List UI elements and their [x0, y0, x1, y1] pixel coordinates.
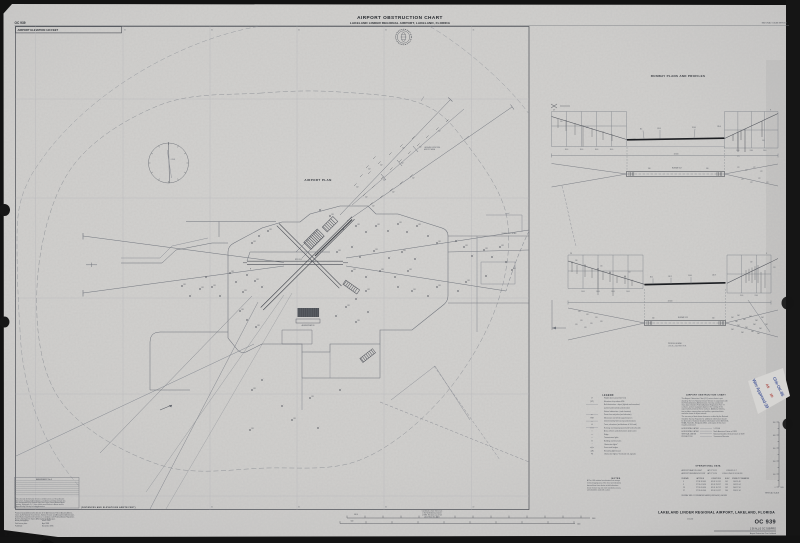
svg-text:240: 240 [575, 260, 578, 262]
svg-text:VERTICAL DATUM: VERTICAL DATUM [682, 432, 697, 435]
svg-text:00: 00 [298, 507, 300, 509]
svg-text:212: 212 [368, 169, 371, 171]
svg-text:PROFILE LEGEND: PROFILE LEGEND [668, 343, 683, 345]
svg-text:264: 264 [757, 333, 760, 335]
svg-text:172: 172 [753, 167, 756, 169]
svg-text:35: 35 [473, 30, 475, 32]
svg-text:181: 181 [311, 396, 314, 398]
svg-text:LAT 27 59 11: LAT 27 59 11 [707, 469, 717, 472]
svg-text:172: 172 [741, 179, 744, 181]
svg-text:27 59 06.946: 27 59 06.946 [696, 490, 706, 492]
svg-text:296 51 34: 296 51 34 [733, 490, 741, 492]
svg-text:3000: 3000 [592, 518, 596, 520]
svg-text:141: 141 [580, 320, 583, 322]
svg-text:VERTICAL SCALE: VERTICAL SCALE [765, 492, 780, 495]
svg-text:264: 264 [749, 316, 752, 318]
svg-text:1:12,000: 1:12,000 [687, 519, 693, 521]
svg-text:and other items of airport int: and other items of airport interest. [682, 412, 708, 415]
svg-text:142.2: 142.2 [668, 276, 672, 278]
svg-text:140 51 46: 140 51 46 [733, 481, 741, 483]
svg-text:Determined by field survey (an: Determined by field survey (and elevatio… [604, 420, 636, 423]
svg-text:AIRPORT OBSTRUCTION CHART: AIRPORT OBSTRUCTION CHART [357, 15, 443, 20]
svg-text:172: 172 [766, 182, 769, 184]
svg-text:23: 23 [683, 487, 685, 489]
svg-text:OC 939: OC 939 [755, 519, 776, 525]
svg-text:264: 264 [751, 331, 754, 333]
svg-text:9: 9 [770, 109, 771, 111]
svg-text:500: 500 [706, 168, 709, 170]
svg-text:FS: FS [591, 454, 593, 456]
svg-text:181: 181 [438, 241, 441, 243]
svg-text:5: 5 [766, 253, 767, 255]
svg-text:RUNWAY: RUNWAY [682, 477, 690, 480]
svg-text:8000: 8000 [595, 149, 599, 151]
svg-text:8000: 8000 [610, 149, 614, 151]
svg-text:+ +: + + [591, 434, 593, 436]
svg-text:181: 181 [251, 428, 254, 430]
svg-text:OPERATIONAL DATA: OPERATIONAL DATA [695, 464, 720, 467]
svg-text:1000: 1000 [577, 524, 581, 526]
svg-text:(171): (171) [590, 401, 594, 403]
svg-text:NOTES: NOTES [611, 478, 620, 480]
svg-text:HORIZONTAL DATUM: HORIZONTAL DATUM [682, 430, 700, 433]
svg-text:500 0: 500 0 [354, 514, 358, 516]
svg-text:5: 5 [683, 481, 684, 483]
svg-text:AMENDMENT No.9: AMENDMENT No.9 [36, 478, 52, 481]
svg-text:10 000: 10 000 [674, 154, 679, 156]
svg-text:Areas of trees and obstruction: Areas of trees and obstructions (and cov… [604, 430, 637, 433]
svg-text:8000: 8000 [580, 149, 584, 151]
svg-text:5 000: 5 000 [688, 275, 692, 277]
svg-text:9: 9 [683, 484, 684, 486]
svg-text:139.6: 139.6 [717, 126, 721, 128]
svg-text:141: 141 [575, 324, 578, 326]
svg-text:OC 939: OC 939 [15, 21, 26, 25]
svg-text:181: 181 [485, 248, 488, 250]
svg-text:400: 400 [773, 435, 776, 437]
svg-text:181: 181 [253, 388, 256, 390]
svg-text:B 41: B 41 [650, 277, 653, 279]
svg-text:141: 141 [600, 321, 603, 323]
svg-text:181: 181 [293, 418, 296, 420]
svg-text:AIRPORT OBSTRUCTION CHART: AIRPORT OBSTRUCTION CHART [686, 394, 726, 397]
svg-text:10 000: 10 000 [668, 301, 673, 303]
svg-text:212: 212 [419, 147, 422, 149]
svg-text:181: 181 [213, 285, 216, 287]
svg-text:264: 264 [741, 332, 744, 334]
svg-text:82 02 23.217: 82 02 23.217 [711, 484, 721, 486]
svg-text:181: 181 [253, 241, 256, 243]
svg-text:172: 172 [745, 170, 748, 172]
svg-text:292: 292 [750, 262, 753, 264]
svg-text:17: 17 [591, 398, 593, 400]
svg-text:23: 23 [570, 253, 572, 255]
svg-text:may be purchased.: may be purchased. [682, 424, 697, 427]
svg-text:181: 181 [257, 325, 260, 327]
svg-text:172: 172 [758, 178, 761, 180]
svg-text:241: 241 [773, 267, 776, 269]
svg-text:212: 212 [372, 206, 375, 208]
svg-text:LAKELAND LINDER REGIONAL AIRPO: LAKELAND LINDER REGIONAL AIRPORT, LAKELA… [658, 511, 775, 515]
svg-text:141: 141 [578, 311, 581, 313]
svg-text:82 01 16.712: 82 01 16.712 [711, 487, 721, 489]
svg-text:November 1985: November 1985 [42, 526, 53, 528]
svg-text:145 21 04: 145 21 04 [733, 484, 741, 486]
svg-text:264: 264 [759, 328, 762, 330]
svg-text:181: 181 [367, 289, 370, 291]
svg-text:172: 172 [750, 182, 753, 184]
svg-text:141: 141 [595, 317, 598, 319]
svg-text:Building and structures: Building and structures [604, 440, 621, 443]
svg-text:181: 181 [357, 320, 360, 322]
svg-text:181: 181 [375, 249, 378, 251]
svg-text:Ridge: Ridge [604, 434, 608, 436]
svg-text:00: 00 [211, 507, 213, 509]
svg-text:181: 181 [183, 284, 186, 286]
svg-text:212: 212 [380, 165, 383, 167]
svg-text:VISIBILITY REMARKS: VISIBILITY REMARKS [732, 477, 750, 480]
svg-text:27 59 07.426: 27 59 07.426 [696, 484, 706, 486]
svg-text:B: B [591, 441, 592, 443]
svg-text:172: 172 [760, 171, 763, 173]
svg-text:140.9: 140.9 [712, 275, 716, 277]
svg-text:27 58 32.049: 27 58 32.049 [696, 481, 706, 483]
svg-text:8 500: 8 500 [692, 127, 696, 129]
svg-text:March 1984: March 1984 [42, 520, 51, 522]
svg-text:181: 181 [331, 214, 334, 216]
svg-text:181: 181 [269, 229, 272, 231]
svg-text:212: 212 [383, 180, 386, 182]
svg-text:1 INCH = 2000 FEET HOR.: 1 INCH = 2000 FEET HOR. [668, 346, 687, 348]
svg-text:269: 269 [586, 127, 589, 129]
svg-text:27 59 09.456: 27 59 09.456 [696, 487, 706, 489]
svg-text:RWY 9-27: RWY 9-27 [295, 259, 302, 261]
svg-text:painted and marked) and elevat: painted and marked) and elevation [604, 407, 630, 410]
svg-text:LAKELAND LINDER REGIONAL AIRPO: LAKELAND LINDER REGIONAL AIRPORT, LAKELA… [350, 21, 451, 25]
svg-text:212: 212 [365, 197, 368, 199]
svg-text:(DISTANCES AND ELEVATIONS A: (DISTANCES AND ELEVATIONS ARE IN FEET) [81, 506, 136, 509]
svg-text:0°30'E: 0°30'E [171, 159, 175, 161]
svg-text:181: 181 [409, 269, 412, 271]
svg-text:B 4: B 4 [640, 129, 642, 131]
svg-text:141: 141 [590, 323, 593, 325]
svg-text:o(R): o(R) [590, 450, 594, 452]
svg-text:2000: 2000 [750, 150, 754, 152]
svg-text:264: 264 [735, 321, 738, 323]
svg-text:LAT 27 59 20: LAT 27 59 20 [707, 472, 717, 475]
svg-text:00: 00 [385, 507, 387, 509]
svg-text:271: 271 [737, 156, 740, 158]
svg-text:Obstruction lights*: Obstruction lights* [604, 443, 618, 446]
svg-text:264: 264 [755, 320, 758, 322]
svg-text:North American Datum of 19: North American Datum of 1983 [714, 430, 737, 433]
svg-text:181: 181 [465, 245, 468, 247]
svg-text:0: 0 [775, 487, 776, 489]
svg-text:Published:: Published: [15, 526, 23, 528]
svg-text:=(=)=: =(=)= [590, 447, 594, 449]
svg-text:264: 264 [731, 317, 734, 319]
svg-text:264: 264 [731, 329, 734, 331]
svg-text:NATIONAL OCEAN SERVICE: NATIONAL OCEAN SERVICE [762, 22, 788, 25]
svg-text:2000: 2000 [740, 295, 744, 297]
svg-text:AIRPORT BEACON LIGHT: AIRPORT BEACON LIGHT [682, 469, 702, 472]
svg-text:142: 142 [725, 487, 728, 489]
svg-text:181: 181 [418, 224, 421, 226]
svg-text:LATITUDE: LATITUDE [696, 477, 705, 480]
svg-text:Elevation of top above MSL: Elevation of top above MSL [604, 400, 625, 403]
svg-text:35: 35 [385, 30, 387, 32]
svg-text:181: 181 [501, 245, 504, 247]
svg-text:2000: 2000 [736, 150, 740, 152]
svg-text:82 00 51.127: 82 00 51.127 [711, 490, 721, 492]
svg-text:300: 300 [773, 448, 776, 450]
svg-text:AIRPORT PLAN: AIRPORT PLAN [304, 178, 331, 182]
svg-text:LONG LONG 82 01 04.263: LONG LONG 82 01 04.263 [722, 473, 742, 475]
svg-text:Height above ground (in feet): Height above ground (in feet) [604, 397, 626, 400]
svg-text:Transmission lights: Transmission lights [604, 436, 619, 439]
svg-text:Trees, elevations (and bottoms: Trees, elevations (and bottoms of 50 ft … [604, 423, 637, 426]
svg-text:339: 339 [560, 121, 563, 123]
svg-text:264: 264 [753, 324, 756, 326]
svg-text:181: 181 [353, 269, 356, 271]
svg-text:306: 306 [762, 140, 765, 142]
svg-text:204: 204 [628, 272, 631, 274]
svg-text:2000: 2000 [755, 295, 759, 297]
svg-text:264: 264 [745, 327, 748, 329]
svg-text:2000: 2000 [763, 150, 767, 152]
svg-text:8000: 8000 [596, 291, 600, 293]
svg-text:181: 181 [256, 279, 259, 281]
svg-text:Power line and poles (and elev: Power line and poles (and elevation) [604, 413, 632, 416]
svg-text:Obstruction lights (* fixed an: Obstruction lights (* fixed and red, sig… [604, 453, 636, 456]
svg-text:212: 212 [392, 192, 395, 194]
svg-text:139: 139 [725, 484, 728, 486]
svg-text:8000: 8000 [626, 291, 630, 293]
svg-text:212: 212 [438, 131, 441, 133]
svg-text:212: 212 [401, 163, 404, 165]
svg-text:100: 100 [773, 474, 776, 476]
svg-text:Microwave and similar appurten: Microwave and similar appurtenances [604, 416, 632, 419]
svg-text:35: 35 [211, 30, 213, 32]
svg-text:181: 181 [438, 285, 441, 287]
svg-text:181: 181 [244, 290, 247, 292]
svg-text:141.0: 141.0 [657, 128, 661, 130]
svg-text:264: 264 [761, 317, 764, 319]
svg-text:141: 141 [586, 314, 589, 316]
svg-text:181: 181 [399, 222, 402, 224]
svg-text:35: 35 [37, 30, 39, 32]
svg-text:82 01 52.151: 82 01 52.151 [711, 481, 721, 483]
svg-text:212: 212 [356, 187, 359, 189]
svg-text:500: 500 [773, 422, 776, 424]
svg-text:500: 500 [648, 168, 651, 170]
svg-text:35: 35 [298, 30, 300, 32]
svg-text:264: 264 [737, 325, 740, 327]
svg-text:8000: 8000 [611, 291, 615, 293]
svg-text:RUNWAY PLANS AND PROFILES: RUNWAY PLANS AND PROFILES [651, 74, 706, 78]
svg-text:AIRPORT REFERENCE POINT: AIRPORT REFERENCE POINT [682, 472, 706, 475]
svg-text:226: 226 [600, 266, 603, 268]
svg-text:181: 181 [201, 287, 204, 289]
svg-text:Natural obstruction - (and ele: Natural obstruction - (and elevation) [604, 410, 631, 413]
svg-text:260 17 56: 260 17 56 [733, 487, 741, 489]
svg-text:181: 181 [347, 305, 350, 307]
svg-text:Revolving light beacon: Revolving light beacon [604, 449, 621, 452]
svg-text:264: 264 [743, 319, 746, 321]
svg-text:8000: 8000 [565, 149, 569, 151]
svg-text:MSL: MSL [781, 487, 784, 489]
svg-text:Transverse Mercator: Transverse Mercator [714, 435, 730, 438]
svg-text:181: 181 [467, 280, 470, 282]
svg-text:181: 181 [513, 268, 516, 270]
svg-text:HORIZONTAL DATUM: HORIZONTAL DATUM [682, 427, 700, 430]
svg-text:172: 172 [737, 167, 740, 169]
svg-text:212: 212 [412, 178, 415, 180]
svg-text:Runway and stopway (paved and: Runway and stopway (paved and hard surfa… [604, 426, 641, 429]
svg-text:264: 264 [737, 315, 740, 317]
svg-text:181: 181 [381, 269, 384, 271]
svg-text:00: 00 [473, 507, 475, 509]
svg-text:LONGITUDE: LONGITUDE [711, 478, 722, 480]
svg-text:LONG 82 01 7: LONG 82 01 7 [726, 470, 737, 472]
svg-text:1 56 ALL/3 OC 939/PRO: 1 56 ALL/3 OC 939/PRO [750, 527, 776, 530]
svg-text:27: 27 [683, 490, 685, 492]
svg-text:181: 181 [377, 224, 380, 226]
svg-text:PROJECTION: PROJECTION [682, 436, 694, 438]
svg-text:8000: 8000 [581, 291, 585, 293]
svg-text:Built obstruction - object (li: Built obstruction - object (lighted and … [604, 403, 640, 406]
svg-text:above Mean Sea Level.: above Mean Sea Level. [424, 517, 440, 519]
svg-text:140: 140 [725, 490, 728, 492]
svg-text:Airport Obstruction Chart Lak: Airport Obstruction Chart Lakeland [750, 532, 776, 535]
svg-text:500: 500 [351, 521, 354, 523]
svg-text:181: 181 [357, 224, 360, 226]
svg-text:National Geodetic Vertical Dat: National Geodetic Vertical Datum of 1929 [714, 432, 745, 435]
svg-text:200: 200 [773, 461, 776, 463]
svg-text:35: 35 [124, 30, 126, 32]
svg-text:27: 27 [553, 109, 555, 111]
svg-text:181: 181 [241, 309, 244, 311]
svg-text:181: 181 [231, 271, 234, 273]
svg-text:141: 141 [584, 327, 587, 329]
svg-text:500: 500 [652, 318, 655, 320]
svg-text:181: 181 [403, 250, 406, 252]
svg-text:141: 141 [725, 481, 728, 483]
svg-text:181: 181 [413, 289, 416, 291]
svg-text:500: 500 [712, 318, 715, 320]
svg-text:Fence and hedges: Fence and hedges [604, 447, 618, 449]
svg-text:212: 212 [402, 148, 405, 150]
svg-text:181: 181 [338, 250, 341, 252]
